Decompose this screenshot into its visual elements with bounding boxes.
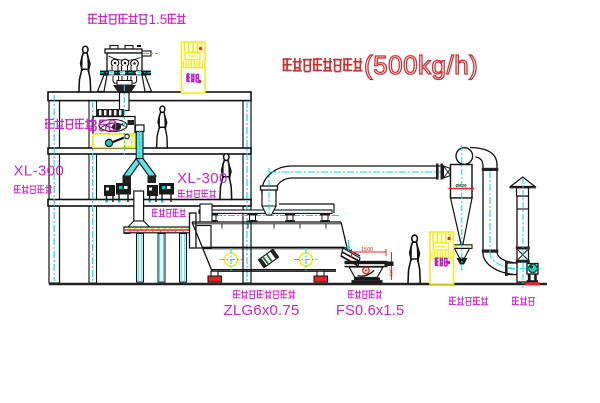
svg-text:ZLG6x0.75: ZLG6x0.75 — [224, 302, 300, 319]
svg-text:XL-300: XL-300 — [177, 170, 228, 187]
svg-text:FS0.6x1.5: FS0.6x1.5 — [336, 303, 404, 319]
svg-text:345: 345 — [389, 269, 394, 277]
svg-text:1500: 1500 — [361, 247, 373, 253]
svg-text:1.5: 1.5 — [149, 12, 168, 27]
svg-text:XL-300: XL-300 — [14, 162, 65, 179]
svg-text:(500kg/h): (500kg/h) — [364, 50, 478, 80]
svg-text:350: 350 — [88, 116, 117, 136]
